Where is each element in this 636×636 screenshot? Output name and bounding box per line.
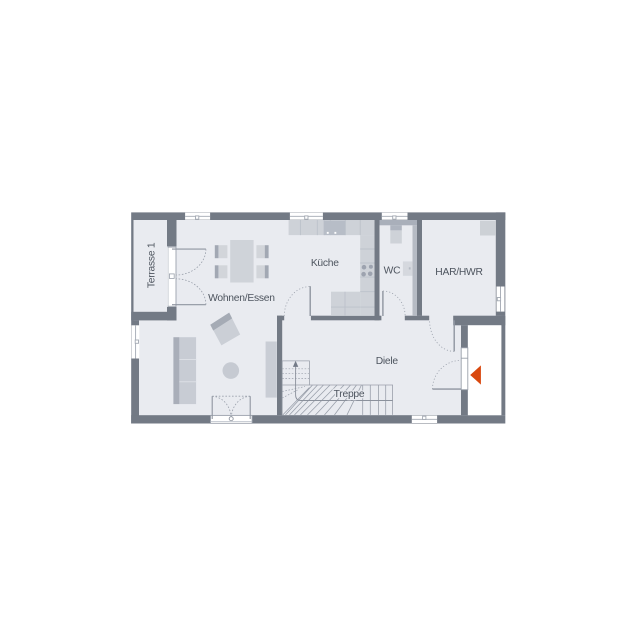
svg-text:Diele: Diele <box>376 356 399 367</box>
svg-text:HAR/HWR: HAR/HWR <box>435 267 482 278</box>
svg-text:Treppe: Treppe <box>334 389 365 400</box>
svg-text:Wohnen/Essen: Wohnen/Essen <box>208 293 275 304</box>
svg-text:Küche: Küche <box>311 258 339 269</box>
svg-text:WC: WC <box>384 266 401 277</box>
svg-text:Terrasse 1: Terrasse 1 <box>147 242 158 288</box>
